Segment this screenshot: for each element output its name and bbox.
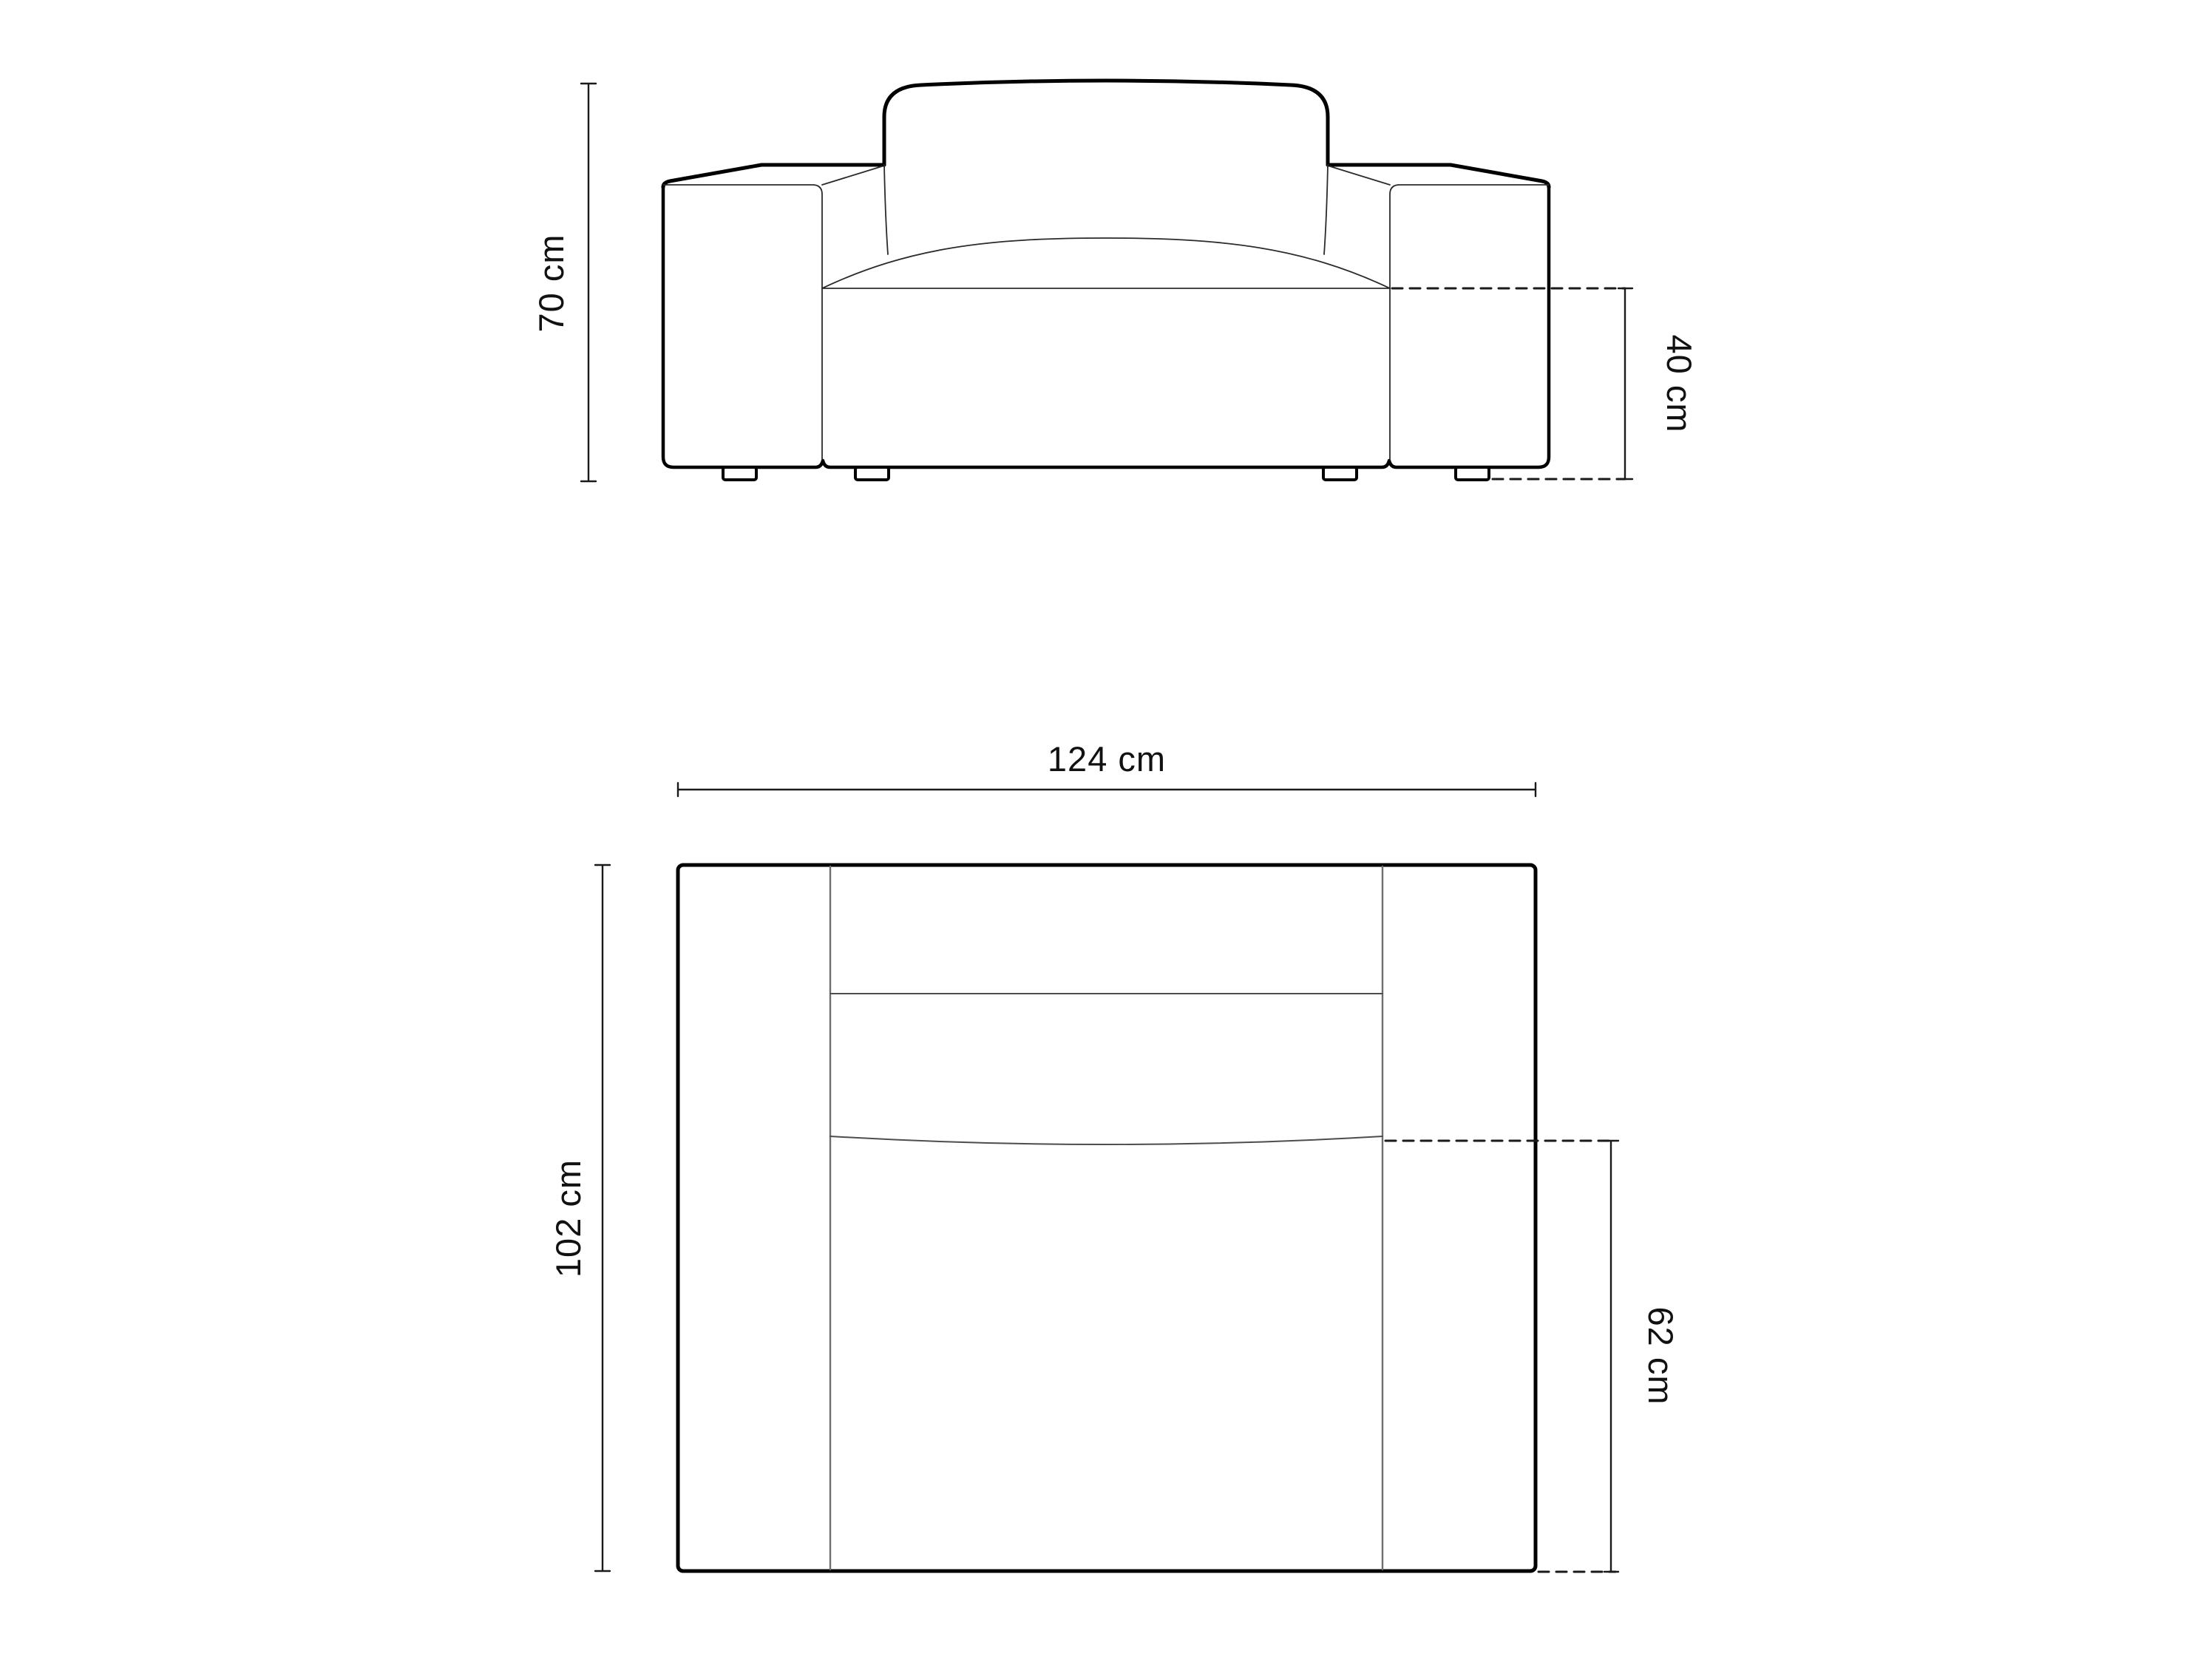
front-backrest-outline	[884, 81, 1328, 165]
plan-outer-rectangle	[678, 865, 1536, 1571]
technical-drawing-canvas: 70 cm 40 cm 124 cm 102 cm 62 cm	[0, 0, 2212, 1659]
plan-width-dimension-line	[678, 783, 1536, 796]
front-seat-height-dimension	[1392, 288, 1632, 479]
front-height-label: 70 cm	[532, 234, 571, 333]
plan-depth-dimension-line	[595, 865, 610, 1571]
front-foot-seat-right	[1323, 467, 1357, 480]
plan-seat-depth-dimension-line	[1604, 1141, 1618, 1572]
front-left-armrest-front-edge	[663, 185, 822, 459]
front-backrest-right-lower-edge	[1324, 165, 1328, 254]
front-seat-cushion-curve	[822, 238, 1390, 288]
front-right-armrest-front-edge	[1390, 185, 1549, 459]
plan-width-dimension	[678, 783, 1536, 796]
front-foot-seat-left	[855, 467, 889, 480]
top-plan-view	[595, 783, 1618, 1572]
front-chair-silhouette	[663, 186, 1549, 467]
front-foot-left-armrest	[723, 467, 756, 480]
plan-depth-label: 102 cm	[549, 1159, 588, 1278]
front-seat-height-label: 40 cm	[1660, 335, 1699, 433]
front-right-armrest-inner-diagonal	[1330, 166, 1390, 185]
plan-width-label: 124 cm	[1048, 739, 1166, 778]
front-height-dimension	[581, 84, 596, 481]
front-height-dimension-line	[581, 84, 596, 481]
front-seat-height-dimension-line	[1618, 288, 1632, 479]
armchair-dimension-diagram: 70 cm 40 cm 124 cm 102 cm 62 cm	[0, 0, 2212, 1659]
front-foot-right-armrest	[1456, 467, 1489, 480]
front-backrest-left-lower-edge	[884, 165, 888, 254]
plan-depth-dimension	[595, 865, 610, 1571]
front-elevation-view	[581, 81, 1632, 481]
plan-seat-depth-label: 62 cm	[1641, 1307, 1680, 1405]
front-left-armrest-inner-diagonal	[822, 166, 882, 185]
